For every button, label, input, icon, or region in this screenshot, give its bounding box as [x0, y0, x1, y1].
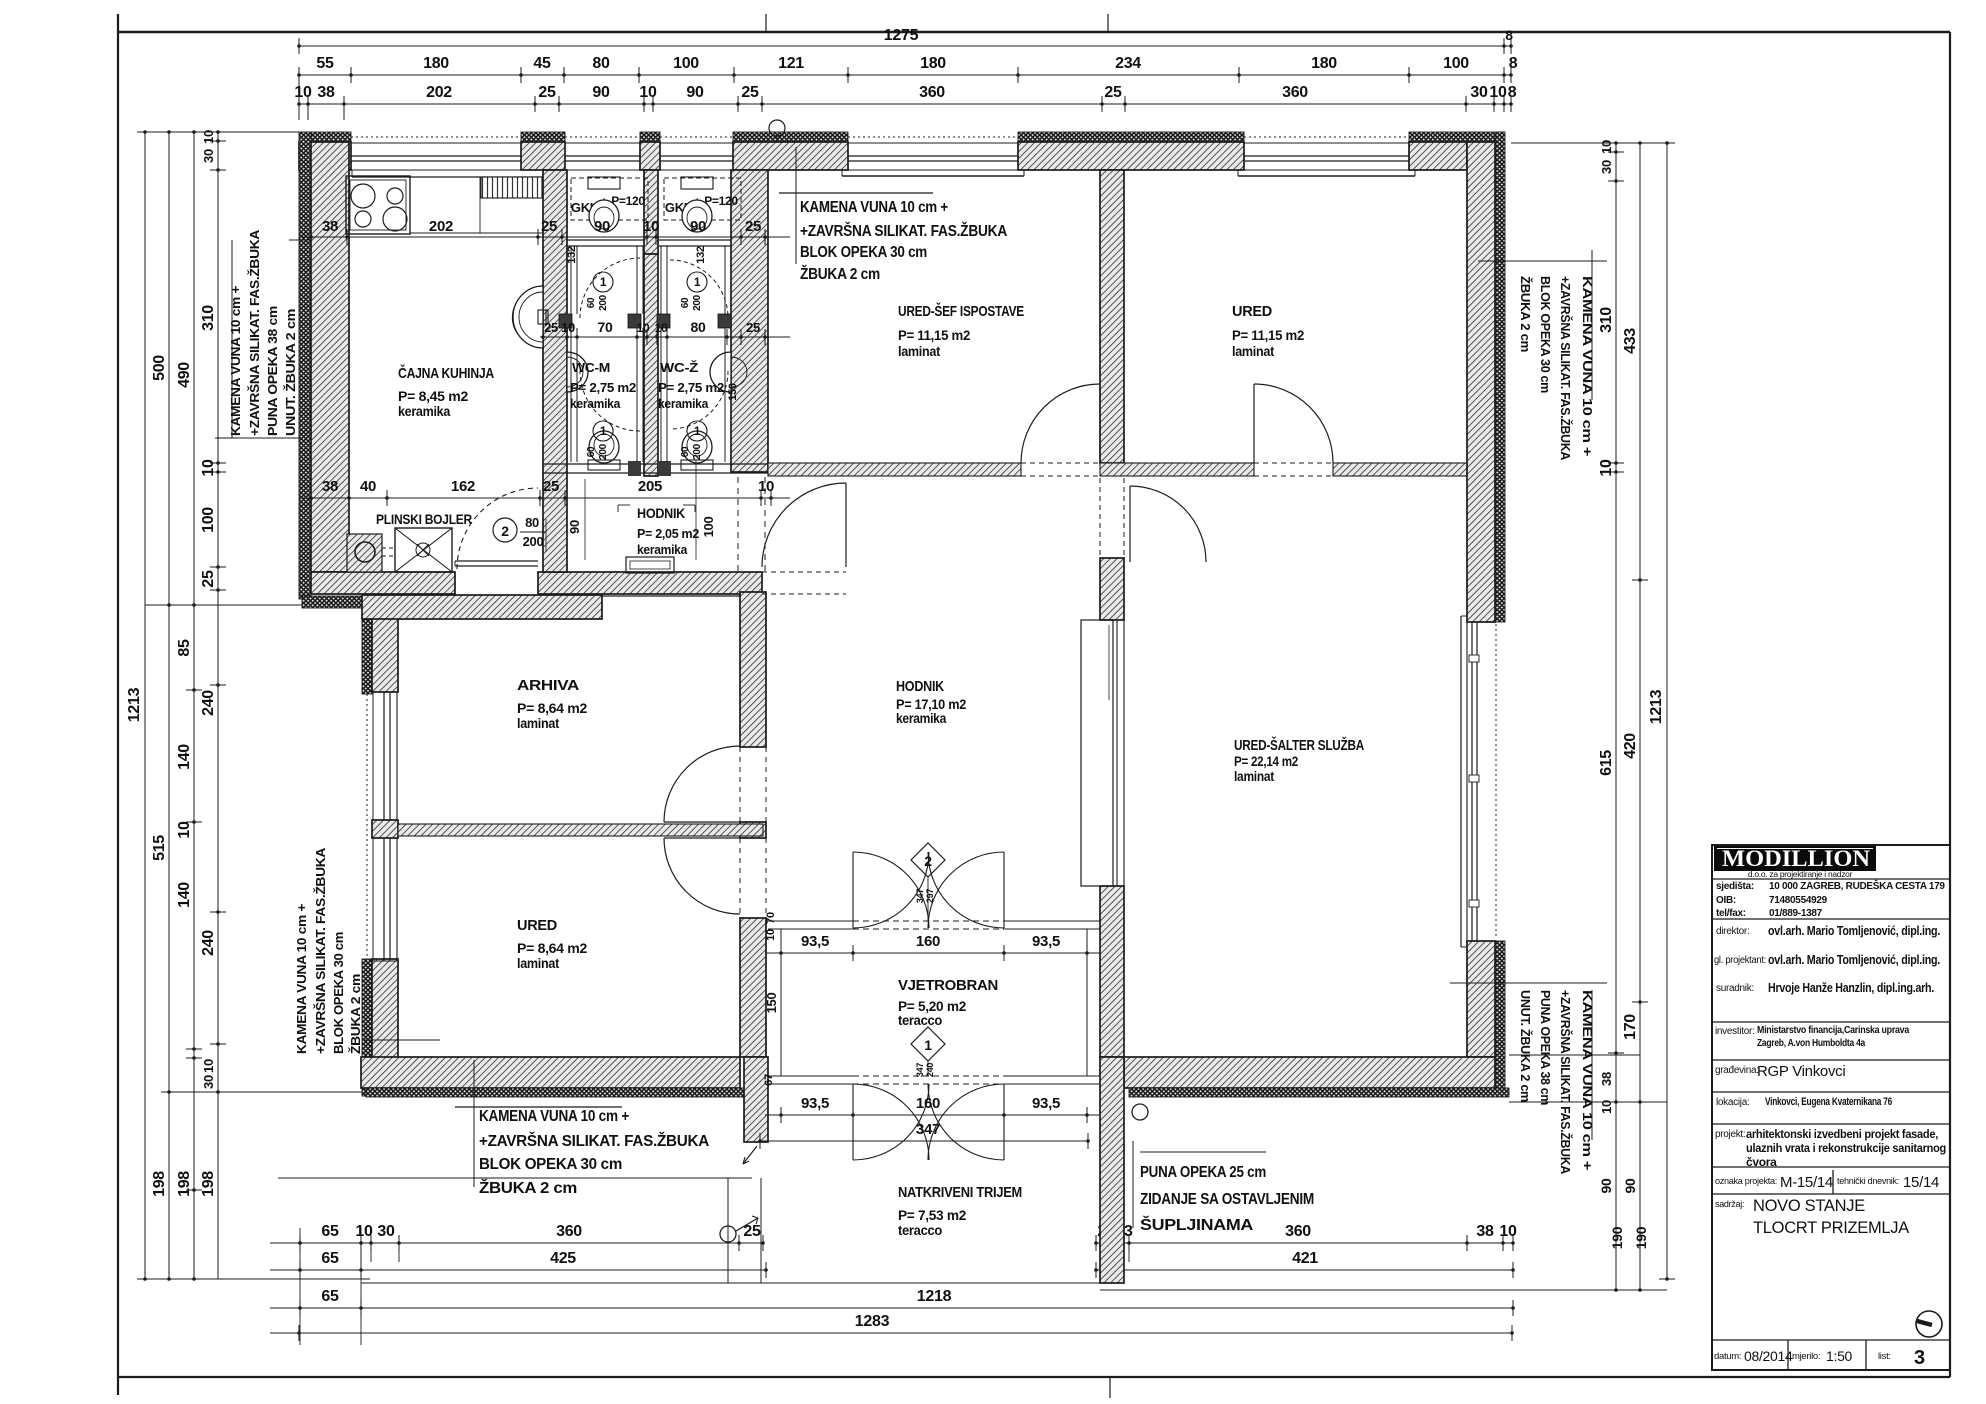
- svg-text:200: 200: [692, 443, 703, 460]
- svg-text:25: 25: [544, 320, 558, 335]
- svg-text:+ZAVRŠNA SILIKAT. FAS.ŽBUKA: +ZAVRŠNA SILIKAT. FAS.ŽBUKA: [247, 230, 262, 436]
- svg-text:sadržaj:: sadržaj:: [1715, 1199, 1744, 1209]
- svg-text:1218: 1218: [917, 1288, 952, 1305]
- svg-text:80: 80: [525, 515, 539, 530]
- svg-text:38: 38: [322, 218, 338, 235]
- svg-text:80: 80: [592, 55, 610, 72]
- svg-text:180: 180: [920, 55, 946, 72]
- svg-text:200: 200: [692, 294, 703, 311]
- svg-text:190: 190: [1609, 1226, 1625, 1249]
- svg-text:keramika: keramika: [398, 404, 451, 419]
- svg-text:100: 100: [200, 507, 217, 533]
- svg-text:P= 2,05 m2: P= 2,05 m2: [637, 526, 699, 541]
- svg-text:10: 10: [765, 929, 777, 941]
- svg-text:PLINSKI BOJLER: PLINSKI BOJLER: [376, 511, 472, 527]
- svg-text:NATKRIVENI TRIJEM: NATKRIVENI TRIJEM: [898, 1184, 1022, 1201]
- svg-text:P= 8,64 m2: P= 8,64 m2: [517, 701, 587, 716]
- svg-text:38: 38: [317, 84, 335, 101]
- svg-text:70: 70: [765, 912, 777, 924]
- svg-text:BLOK OPEKA 30 cm: BLOK OPEKA 30 cm: [332, 932, 346, 1054]
- svg-text:10: 10: [1489, 84, 1507, 101]
- svg-text:ŽBUKA 2 cm: ŽBUKA 2 cm: [800, 264, 880, 283]
- svg-text:P= 8,64 m2: P= 8,64 m2: [517, 941, 587, 956]
- svg-text:ARHIVA: ARHIVA: [517, 677, 580, 694]
- svg-text:25: 25: [741, 84, 759, 101]
- svg-text:25: 25: [745, 218, 761, 235]
- svg-text:laminat: laminat: [517, 956, 560, 971]
- svg-text:198: 198: [200, 1171, 217, 1197]
- svg-text:HODNIK: HODNIK: [896, 678, 944, 695]
- svg-text:200: 200: [523, 534, 544, 549]
- svg-text:laminat: laminat: [898, 344, 941, 359]
- svg-text:15/14: 15/14: [1903, 1174, 1939, 1191]
- svg-text:1:50: 1:50: [1826, 1348, 1853, 1364]
- svg-text:HODNIK: HODNIK: [637, 505, 685, 521]
- svg-text:40: 40: [360, 478, 376, 495]
- svg-text:100: 100: [701, 517, 716, 538]
- svg-text:198: 198: [176, 1171, 193, 1197]
- svg-text:90: 90: [594, 218, 610, 235]
- svg-text:Ministarstvo financija,Carinsk: Ministarstvo financija,Carinska uprava: [1757, 1024, 1909, 1036]
- svg-text:93,5: 93,5: [801, 933, 829, 950]
- svg-text:RGP Vinkovci: RGP Vinkovci: [1757, 1063, 1845, 1080]
- svg-text:10: 10: [355, 1223, 373, 1240]
- svg-text:25: 25: [541, 218, 557, 235]
- svg-text:60: 60: [586, 297, 597, 308]
- svg-text:ŽBUKA 2 cm: ŽBUKA 2 cm: [1518, 276, 1533, 352]
- svg-text:421: 421: [1292, 1250, 1318, 1267]
- svg-text:515: 515: [151, 835, 168, 861]
- svg-text:d.o.o. za projektiranje i nadz: d.o.o. za projektiranje i nadzor: [1748, 869, 1853, 879]
- svg-text:100: 100: [673, 55, 699, 72]
- svg-text:keramika: keramika: [896, 711, 947, 726]
- svg-text:234: 234: [1115, 55, 1141, 72]
- svg-text:+ZAVRŠNA SILIKAT. FAS.ŽBUKA: +ZAVRŠNA SILIKAT. FAS.ŽBUKA: [1558, 990, 1573, 1174]
- svg-text:ŠUPLJINAMA: ŠUPLJINAMA: [1140, 1215, 1254, 1234]
- svg-text:90: 90: [1622, 1178, 1638, 1193]
- svg-text:60: 60: [680, 297, 691, 308]
- svg-text:10: 10: [643, 218, 659, 235]
- svg-text:93,5: 93,5: [801, 1095, 829, 1112]
- svg-text:200: 200: [598, 294, 609, 311]
- svg-text:mjerilo:: mjerilo:: [1792, 1351, 1820, 1362]
- svg-text:30: 30: [1470, 84, 1488, 101]
- svg-text:1: 1: [924, 1037, 932, 1053]
- svg-text:PUNA OPEKA 38 cm: PUNA OPEKA 38 cm: [1538, 990, 1552, 1105]
- svg-text:01/889-1387: 01/889-1387: [1769, 908, 1823, 919]
- svg-text:keramika: keramika: [658, 397, 709, 411]
- svg-text:205: 205: [638, 478, 662, 495]
- svg-text:30: 30: [201, 149, 216, 163]
- svg-text:360: 360: [556, 1223, 582, 1240]
- svg-text:10: 10: [176, 821, 193, 839]
- svg-text:direktor:: direktor:: [1716, 926, 1749, 937]
- svg-text:25: 25: [538, 84, 556, 101]
- svg-text:180: 180: [423, 55, 449, 72]
- svg-text:ZIDANJE SA OSTAVLJENIM: ZIDANJE SA OSTAVLJENIM: [1140, 1191, 1314, 1208]
- svg-text:202: 202: [426, 84, 452, 101]
- svg-text:URED-ŠALTER SLUŽBA: URED-ŠALTER SLUŽBA: [1234, 736, 1364, 754]
- svg-text:UNUT. ŽBUKA 2 cm: UNUT. ŽBUKA 2 cm: [283, 309, 298, 436]
- svg-text:BLOK OPEKA 30 cm: BLOK OPEKA 30 cm: [1538, 276, 1552, 393]
- svg-text:P= 17,10 m2: P= 17,10 m2: [896, 697, 966, 712]
- svg-text:70: 70: [598, 319, 613, 335]
- svg-text:347: 347: [915, 889, 925, 903]
- svg-text:25: 25: [746, 320, 760, 335]
- svg-text:WC-Ž: WC-Ž: [660, 360, 698, 375]
- svg-text:ovl.arh. Mario Tomljenović, di: ovl.arh. Mario Tomljenović, dipl.ing.: [1768, 952, 1940, 967]
- svg-text:10: 10: [294, 84, 312, 101]
- svg-text:360: 360: [919, 84, 945, 101]
- svg-text:500: 500: [151, 355, 168, 381]
- svg-text:suradnik:: suradnik:: [1716, 983, 1754, 994]
- svg-text:arhitektonski izvedbeni projek: arhitektonski izvedbeni projekt fasade,: [1746, 1127, 1938, 1141]
- svg-text:10: 10: [637, 321, 650, 335]
- svg-text:10: 10: [1599, 140, 1614, 154]
- svg-text:8: 8: [1509, 55, 1518, 72]
- svg-text:1: 1: [600, 424, 607, 438]
- svg-text:132: 132: [695, 246, 707, 264]
- svg-text:150: 150: [727, 383, 739, 401]
- svg-text:PUNA OPEKA 38 cm: PUNA OPEKA 38 cm: [266, 306, 280, 436]
- svg-text:65: 65: [321, 1288, 339, 1305]
- svg-text:KAMENA VUNA 10 cm +: KAMENA VUNA 10 cm +: [295, 904, 309, 1054]
- svg-text:keramika: keramika: [637, 542, 688, 557]
- svg-text:KAMENA VUNA 10 cm +: KAMENA VUNA 10 cm +: [479, 1108, 629, 1125]
- svg-text:P= 22,14 m2: P= 22,14 m2: [1234, 754, 1298, 769]
- svg-text:10: 10: [639, 84, 657, 101]
- svg-text:TLOCRT PRIZEMLJA: TLOCRT PRIZEMLJA: [1753, 1219, 1909, 1237]
- svg-text:KAMENA VUNA 10 cm +: KAMENA VUNA 10 cm +: [1580, 276, 1594, 456]
- svg-text:+ZAVRŠNA SILIKAT. FAS.ŽBUKA: +ZAVRŠNA SILIKAT. FAS.ŽBUKA: [313, 848, 328, 1054]
- svg-text:ulaznih vrata i rekonstrukcije: ulaznih vrata i rekonstrukcije sanitarno…: [1746, 1141, 1946, 1155]
- svg-text:198: 198: [151, 1171, 168, 1197]
- svg-text:ŽBUKA 2 cm: ŽBUKA 2 cm: [348, 974, 363, 1054]
- svg-text:investitor:: investitor:: [1715, 1026, 1755, 1037]
- svg-text:gl. projektant:: gl. projektant:: [1714, 955, 1766, 966]
- svg-text:93,5: 93,5: [1032, 1095, 1060, 1112]
- svg-text:90: 90: [1598, 1178, 1614, 1193]
- svg-text:65: 65: [321, 1223, 339, 1240]
- svg-text:KAMENA VUNA 10 cm +: KAMENA VUNA 10 cm +: [229, 286, 243, 436]
- svg-text:67: 67: [763, 1074, 775, 1086]
- svg-text:P= 2,75 m2: P= 2,75 m2: [570, 381, 636, 395]
- svg-text:433: 433: [1622, 328, 1639, 354]
- svg-text:oznaka projekta:: oznaka projekta:: [1715, 1176, 1777, 1186]
- svg-text:08/2014: 08/2014: [1744, 1348, 1793, 1364]
- svg-text:347: 347: [916, 1121, 940, 1138]
- svg-text:202: 202: [429, 218, 453, 235]
- svg-text:30: 30: [377, 1223, 395, 1240]
- svg-text:170: 170: [1622, 1014, 1639, 1040]
- svg-text:laminat: laminat: [1232, 344, 1275, 359]
- svg-text:162: 162: [451, 478, 475, 495]
- svg-text:1275: 1275: [884, 27, 919, 44]
- svg-text:55: 55: [316, 55, 334, 72]
- svg-text:10: 10: [655, 321, 668, 335]
- svg-text:P= 11,15 m2: P= 11,15 m2: [1232, 328, 1304, 343]
- svg-text:Vinkovci, Eugena Kvaternikana: Vinkovci, Eugena Kvaternikana 76: [1765, 1096, 1892, 1108]
- svg-text:60: 60: [680, 446, 691, 457]
- svg-text:10: 10: [561, 320, 575, 335]
- svg-text:KAMENA VUNA 10 cm +: KAMENA VUNA 10 cm +: [800, 199, 948, 216]
- svg-text:1: 1: [600, 275, 607, 289]
- svg-text:10: 10: [200, 459, 217, 477]
- svg-text:10: 10: [201, 1059, 216, 1073]
- svg-text:sjedišta:: sjedišta:: [1716, 881, 1754, 892]
- svg-text:60: 60: [586, 446, 597, 457]
- svg-text:list:: list:: [1878, 1351, 1891, 1362]
- svg-text:P= 8,45 m2: P= 8,45 m2: [398, 389, 468, 404]
- svg-text:297: 297: [925, 889, 935, 903]
- svg-text:25: 25: [1104, 84, 1122, 101]
- svg-text:347: 347: [915, 1063, 925, 1077]
- svg-text:420: 420: [1622, 733, 1639, 759]
- svg-text:građevina:: građevina:: [1715, 1065, 1759, 1076]
- svg-text:1: 1: [694, 275, 701, 289]
- svg-text:1213: 1213: [126, 687, 143, 722]
- svg-text:360: 360: [1285, 1223, 1311, 1240]
- svg-text:P= 11,15 m2: P= 11,15 m2: [898, 328, 970, 343]
- svg-text:2: 2: [501, 523, 509, 539]
- svg-text:PUNA OPEKA 25 cm: PUNA OPEKA 25 cm: [1140, 1164, 1266, 1181]
- svg-text:ovl.arh. Mario Tomljenović, di: ovl.arh. Mario Tomljenović, dipl.ing.: [1768, 923, 1940, 938]
- svg-text:1213: 1213: [1648, 689, 1665, 724]
- svg-text:tehnički dnevnik:: tehnički dnevnik:: [1837, 1176, 1899, 1186]
- svg-text:240: 240: [200, 690, 217, 716]
- svg-text:keramika: keramika: [570, 397, 621, 411]
- svg-text:71480554929: 71480554929: [1769, 895, 1828, 906]
- svg-text:P= 5,20 m2: P= 5,20 m2: [898, 999, 966, 1014]
- svg-text:teracco: teracco: [898, 1223, 942, 1238]
- svg-text:10: 10: [1499, 1223, 1517, 1240]
- svg-text:100: 100: [1443, 55, 1469, 72]
- svg-text:Zagreb, A.von Humboldta 4a: Zagreb, A.von Humboldta 4a: [1757, 1037, 1865, 1049]
- svg-text:P= 2,75 m2: P= 2,75 m2: [658, 381, 724, 395]
- svg-text:240: 240: [200, 930, 217, 956]
- svg-text:93,5: 93,5: [1032, 933, 1060, 950]
- svg-text:1: 1: [694, 424, 701, 438]
- svg-text:90: 90: [567, 520, 582, 534]
- svg-text:45: 45: [533, 55, 551, 72]
- svg-text:3: 3: [1914, 1347, 1925, 1369]
- svg-text:38: 38: [1599, 1072, 1614, 1086]
- svg-text:132: 132: [566, 246, 578, 264]
- svg-text:ČAJNA KUHINJA: ČAJNA KUHINJA: [398, 364, 494, 382]
- svg-text:WC-M: WC-M: [572, 360, 610, 375]
- svg-text:150: 150: [764, 993, 779, 1014]
- svg-text:38: 38: [1476, 1223, 1494, 1240]
- svg-text:MODILLION: MODILLION: [1722, 846, 1870, 871]
- svg-text:1283: 1283: [855, 1313, 890, 1330]
- svg-text:BLOK OPEKA 30 cm: BLOK OPEKA 30 cm: [479, 1156, 622, 1173]
- svg-text:URED: URED: [517, 917, 557, 934]
- svg-text:30: 30: [201, 1075, 216, 1089]
- svg-text:160: 160: [916, 1095, 940, 1112]
- svg-text:25: 25: [200, 570, 217, 588]
- svg-text:čvora: čvora: [1746, 1155, 1777, 1169]
- svg-text:M-15/14: M-15/14: [1780, 1174, 1833, 1191]
- svg-text:190: 190: [1633, 1226, 1649, 1249]
- svg-text:8: 8: [1508, 84, 1517, 101]
- svg-text:180: 180: [1311, 55, 1337, 72]
- svg-text:90: 90: [592, 84, 610, 101]
- svg-text:140: 140: [176, 882, 193, 908]
- svg-text:160: 160: [916, 933, 940, 950]
- svg-text:KAMENA VUNA 10 cm +: KAMENA VUNA 10 cm +: [1580, 990, 1594, 1170]
- svg-text:90: 90: [690, 218, 706, 235]
- svg-text:URED: URED: [1232, 303, 1272, 320]
- svg-text:310: 310: [200, 305, 217, 331]
- svg-text:OIB:: OIB:: [1716, 895, 1736, 906]
- svg-text:80: 80: [691, 319, 706, 335]
- svg-text:datum:: datum:: [1714, 1351, 1741, 1362]
- svg-text:tel/fax:: tel/fax:: [1716, 908, 1746, 919]
- svg-text:90: 90: [686, 84, 704, 101]
- svg-text:140: 140: [176, 744, 193, 770]
- svg-text:NOVO STANJE: NOVO STANJE: [1753, 1197, 1865, 1215]
- svg-text:Hrvoje Hanže Hanzlin, dipl.ing: Hrvoje Hanže Hanzlin, dipl.ing.arh.: [1768, 980, 1934, 995]
- svg-text:360: 360: [1282, 84, 1308, 101]
- svg-text:ŽBUKA 2 cm: ŽBUKA 2 cm: [479, 1178, 577, 1197]
- svg-text:teracco: teracco: [898, 1013, 942, 1028]
- svg-text:+ZAVRŠNA SILIKAT. FAS.ŽBUKA: +ZAVRŠNA SILIKAT. FAS.ŽBUKA: [800, 221, 1008, 240]
- svg-text:200: 200: [598, 443, 609, 460]
- svg-text:38: 38: [322, 478, 338, 495]
- svg-text:UNUT. ŽBUKA 2 cm: UNUT. ŽBUKA 2 cm: [1518, 990, 1533, 1102]
- svg-text:projekt:: projekt:: [1715, 1129, 1745, 1140]
- svg-text:VJETROBRAN: VJETROBRAN: [898, 977, 998, 994]
- svg-text:8: 8: [1505, 27, 1513, 43]
- svg-text:615: 615: [1598, 750, 1615, 776]
- svg-text:+ZAVRŠNA SILIKAT. FAS.ŽBUKA: +ZAVRŠNA SILIKAT. FAS.ŽBUKA: [479, 1131, 710, 1150]
- svg-text:85: 85: [176, 639, 193, 657]
- svg-text:121: 121: [778, 55, 804, 72]
- svg-text:30: 30: [1599, 160, 1614, 174]
- svg-text:10: 10: [1598, 459, 1615, 477]
- svg-text:2: 2: [924, 853, 932, 869]
- svg-text:+ZAVRŠNA SILIKAT. FAS.ŽBUKA: +ZAVRŠNA SILIKAT. FAS.ŽBUKA: [1558, 276, 1573, 460]
- svg-text:lokacija:: lokacija:: [1716, 1097, 1749, 1108]
- svg-text:P= 7,53 m2: P= 7,53 m2: [898, 1208, 966, 1223]
- svg-text:laminat: laminat: [1234, 769, 1275, 784]
- svg-text:310: 310: [1598, 307, 1615, 333]
- svg-text:BLOK OPEKA 30 cm: BLOK OPEKA 30 cm: [800, 244, 927, 261]
- svg-text:10 000 ZAGREB, RUDEŠKA CESTA 1: 10 000 ZAGREB, RUDEŠKA CESTA 179: [1769, 879, 1945, 892]
- svg-text:laminat: laminat: [517, 716, 560, 731]
- svg-text:490: 490: [176, 362, 193, 388]
- svg-text:25: 25: [543, 478, 559, 495]
- svg-text:240: 240: [925, 1063, 935, 1077]
- svg-text:URED-ŠEF ISPOSTAVE: URED-ŠEF ISPOSTAVE: [898, 302, 1024, 320]
- svg-text:65: 65: [321, 1250, 339, 1267]
- svg-text:10: 10: [758, 478, 774, 495]
- svg-text:425: 425: [550, 1250, 576, 1267]
